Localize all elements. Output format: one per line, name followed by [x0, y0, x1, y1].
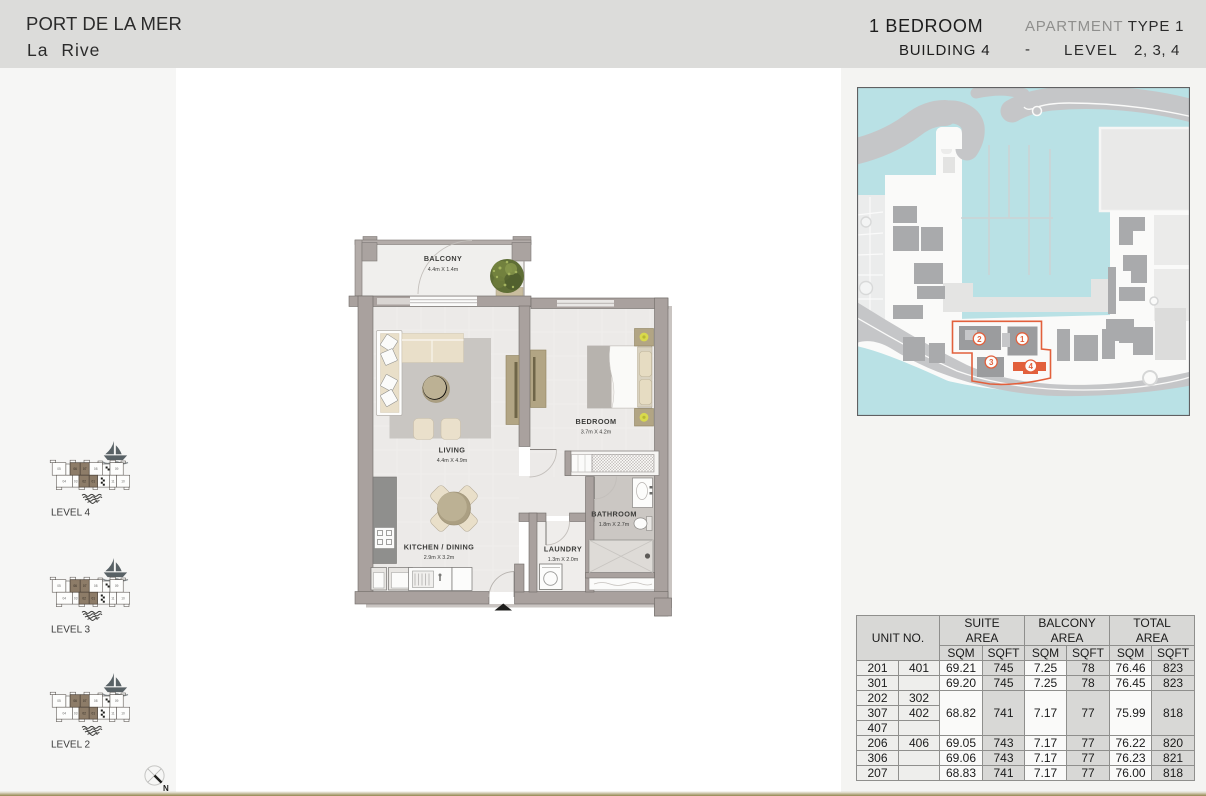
svg-text:05: 05	[57, 584, 61, 588]
svg-text:BATHROOM: BATHROOM	[591, 510, 637, 519]
svg-text:07: 07	[83, 699, 87, 703]
svg-text:BEDROOM: BEDROOM	[576, 417, 617, 426]
svg-text:01: 01	[92, 596, 96, 600]
svg-text:06: 06	[73, 584, 77, 588]
svg-text:03: 03	[74, 479, 78, 483]
svg-text:09: 09	[115, 467, 119, 471]
svg-text:02: 02	[82, 711, 86, 715]
svg-text:04: 04	[63, 479, 67, 483]
svg-text:09: 09	[115, 699, 119, 703]
svg-text:1.3m X 2.0m: 1.3m X 2.0m	[548, 557, 579, 563]
svg-text:LEVEL 3: LEVEL 3	[51, 625, 91, 636]
svg-text:LEVEL 2: LEVEL 2	[51, 740, 91, 751]
svg-text:07: 07	[83, 467, 87, 471]
svg-text:05: 05	[57, 467, 61, 471]
svg-text:LIVING: LIVING	[439, 446, 466, 455]
svg-text:LEVEL 4: LEVEL 4	[51, 508, 91, 519]
svg-text:4: 4	[1028, 362, 1033, 371]
svg-text:1: 1	[1020, 335, 1025, 344]
svg-text:3: 3	[989, 358, 994, 367]
svg-text:05: 05	[57, 699, 61, 703]
svg-text:KITCHEN / DINING: KITCHEN / DINING	[404, 543, 474, 552]
svg-text:11: 11	[111, 479, 115, 483]
svg-text:08: 08	[94, 584, 98, 588]
svg-text:07: 07	[83, 584, 87, 588]
svg-text:10: 10	[121, 596, 125, 600]
svg-text:11: 11	[111, 711, 115, 715]
svg-text:04: 04	[63, 596, 67, 600]
svg-text:3.7m X 4.2m: 3.7m X 4.2m	[581, 430, 612, 436]
svg-text:4.4m X 1.4m: 4.4m X 1.4m	[428, 267, 459, 273]
svg-text:4.4m X 4.9m: 4.4m X 4.9m	[437, 458, 468, 464]
svg-text:04: 04	[63, 711, 67, 715]
svg-text:06: 06	[73, 467, 77, 471]
svg-text:LAUNDRY: LAUNDRY	[544, 545, 582, 554]
svg-text:10: 10	[121, 479, 125, 483]
svg-text:2: 2	[977, 335, 982, 344]
svg-text:09: 09	[115, 584, 119, 588]
svg-text:08: 08	[94, 699, 98, 703]
svg-text:11: 11	[111, 596, 115, 600]
svg-text:01: 01	[92, 479, 96, 483]
svg-text:2.9m X 3.2m: 2.9m X 3.2m	[424, 555, 455, 561]
svg-text:1.8m X 2.7m: 1.8m X 2.7m	[599, 522, 630, 528]
svg-text:03: 03	[74, 596, 78, 600]
svg-text:01: 01	[92, 711, 96, 715]
svg-text:02: 02	[82, 479, 86, 483]
svg-text:02: 02	[82, 596, 86, 600]
svg-text:08: 08	[94, 467, 98, 471]
svg-text:06: 06	[73, 699, 77, 703]
svg-text:03: 03	[74, 711, 78, 715]
svg-text:10: 10	[121, 711, 125, 715]
svg-text:BALCONY: BALCONY	[424, 254, 462, 263]
